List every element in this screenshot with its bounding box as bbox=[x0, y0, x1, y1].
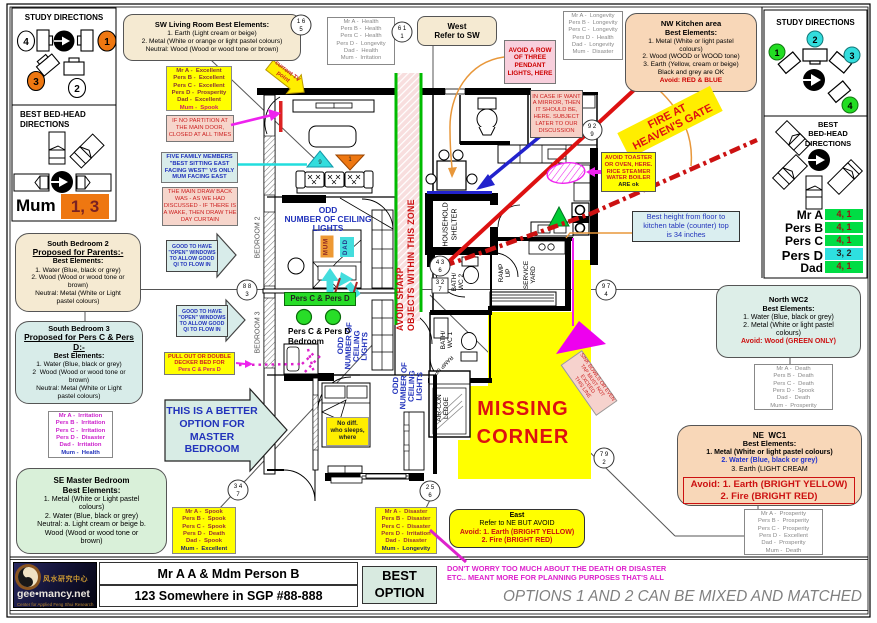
svg-text:9 7: 9 7 bbox=[602, 284, 611, 290]
svg-text:4: 4 bbox=[23, 37, 29, 48]
svg-text:8 8: 8 8 bbox=[243, 284, 252, 290]
svg-text:1: 1 bbox=[104, 37, 110, 48]
svg-text:3: 3 bbox=[849, 51, 854, 61]
svg-text:4 3: 4 3 bbox=[436, 260, 445, 266]
svg-text:7 9: 7 9 bbox=[600, 452, 609, 458]
svg-text:4: 4 bbox=[847, 101, 852, 111]
svg-text:3: 3 bbox=[33, 77, 39, 88]
svg-text:2: 2 bbox=[74, 84, 80, 95]
svg-text:3 4: 3 4 bbox=[234, 484, 243, 490]
svg-text:2 5: 2 5 bbox=[426, 485, 435, 491]
svg-text:3 2: 3 2 bbox=[436, 280, 445, 286]
svg-text:1: 1 bbox=[774, 48, 779, 58]
svg-text:9 2: 9 2 bbox=[588, 124, 597, 130]
svg-text:2: 2 bbox=[812, 35, 817, 45]
